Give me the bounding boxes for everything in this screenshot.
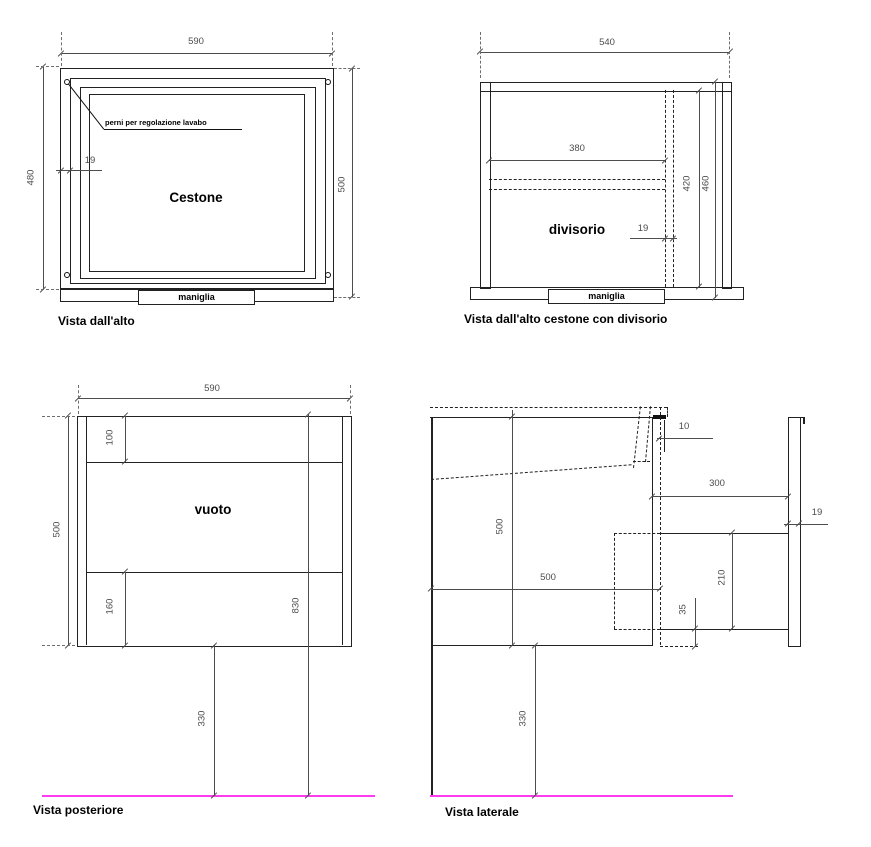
- dim-line: [489, 160, 665, 161]
- view-label-divisorio: divisorio: [527, 222, 627, 237]
- dim-text: 500: [533, 572, 563, 583]
- hidden-support-edge: [614, 533, 660, 534]
- dim-line: [784, 524, 828, 525]
- handle-label: maniglia: [178, 292, 215, 302]
- back-panel: [788, 417, 801, 648]
- ext-line: [334, 297, 360, 298]
- shelf-top-edge: [660, 533, 788, 535]
- dim-text: 590: [181, 36, 211, 47]
- hidden-bottom-ext: [660, 646, 698, 647]
- dim-text: 500: [337, 172, 348, 198]
- hidden-support-edge: [614, 629, 660, 630]
- dim-line: [695, 598, 696, 647]
- countertop-edge: [430, 417, 657, 419]
- dim-line: [68, 416, 69, 646]
- handle-box: maniglia: [138, 290, 255, 305]
- dim-line: [652, 496, 789, 497]
- dim-text: 830: [291, 593, 302, 619]
- counter-front-edge: [664, 420, 665, 452]
- side-wall-inner: [86, 416, 87, 646]
- basin-hidden-edge: [633, 461, 650, 462]
- dim-line: [61, 53, 332, 54]
- dim-line: [352, 68, 353, 297]
- hidden-top-edge: [667, 407, 668, 417]
- dim-text: 590: [197, 383, 227, 394]
- floor-line: [42, 795, 375, 797]
- annotation-label: perni per regolazione lavabo: [105, 118, 207, 127]
- pin-circle: [64, 272, 70, 278]
- technical-drawing-canvas: maniglia perni per regolazione lavabo Ce…: [0, 0, 871, 847]
- dim-text: 380: [562, 143, 592, 154]
- cabinet-outline: [77, 416, 352, 648]
- dim-text: 100: [105, 425, 116, 451]
- ext-line: [42, 416, 75, 417]
- dim-text: 480: [26, 165, 37, 191]
- dim-text: 420: [682, 171, 693, 197]
- basin-hidden-edge: [431, 464, 632, 480]
- hidden-support-edge: [614, 533, 615, 629]
- pin-circle: [325, 272, 331, 278]
- view-title: Vista laterale: [445, 805, 519, 819]
- dim-text: 210: [717, 565, 728, 591]
- ext-line: [36, 289, 59, 290]
- divider-hidden-edge: [673, 90, 674, 287]
- dim-text: 19: [628, 223, 658, 234]
- leader-underline: [104, 129, 242, 130]
- floor-line: [430, 795, 733, 797]
- cabinet-front-edge: [652, 417, 654, 647]
- view-title: Vista dall'alto cestone con divisorio: [464, 312, 667, 326]
- dim-line: [732, 533, 733, 629]
- dim-text: 540: [592, 37, 622, 48]
- ext-line: [480, 32, 481, 78]
- panel-hook: [803, 417, 805, 424]
- ext-line: [36, 66, 59, 67]
- dim-text: 300: [702, 478, 732, 489]
- rear-rail: [480, 82, 732, 93]
- hidden-front-edge: [660, 407, 661, 646]
- dim-text: 330: [518, 706, 529, 732]
- shelf-bottom-edge: [660, 629, 788, 631]
- dim-text: 160: [105, 594, 116, 620]
- dim-line: [715, 82, 716, 298]
- dim-line: [56, 170, 102, 171]
- dim-line: [308, 414, 309, 796]
- ext-line: [332, 32, 333, 66]
- hidden-top-edge: [430, 407, 667, 408]
- dim-text: 500: [52, 517, 63, 543]
- wall-edge: [431, 417, 433, 796]
- dim-text: 19: [802, 507, 832, 518]
- handle-label: maniglia: [588, 291, 625, 301]
- ext-line: [334, 68, 360, 69]
- dim-line: [125, 416, 126, 462]
- dim-line: [699, 90, 700, 287]
- dim-text: 19: [75, 155, 105, 166]
- view-label-cestone: Cestone: [146, 190, 246, 205]
- dim-line: [535, 645, 536, 795]
- right-wall: [722, 82, 733, 289]
- dim-line: [480, 52, 730, 53]
- dim-text: 35: [678, 597, 689, 623]
- ext-line: [729, 32, 730, 78]
- dim-line: [431, 589, 660, 590]
- cabinet-bottom-edge: [431, 645, 652, 647]
- view-title: Vista posteriore: [33, 803, 123, 817]
- dim-line: [125, 572, 126, 646]
- left-wall: [480, 82, 491, 289]
- view-title: Vista dall'alto: [58, 314, 135, 328]
- dim-line: [214, 645, 215, 796]
- rail-hidden-edge: [489, 179, 665, 180]
- basin-hidden-edge: [645, 406, 651, 462]
- side-wall-inner: [342, 416, 343, 646]
- ext-line: [42, 645, 75, 646]
- dim-text: 460: [700, 171, 711, 197]
- dim-line: [657, 438, 713, 439]
- dim-line: [512, 410, 513, 645]
- dim-text: 10: [669, 421, 699, 432]
- dim-text: 330: [196, 706, 207, 732]
- ext-line: [350, 385, 351, 414]
- tick: [692, 643, 698, 649]
- ext-line: [78, 385, 79, 414]
- view-label-vuoto: vuoto: [163, 502, 263, 517]
- rail-hidden-edge: [489, 189, 665, 190]
- dim-line: [78, 398, 350, 399]
- divider-hidden-edge: [665, 90, 666, 287]
- pin-circle: [325, 79, 331, 85]
- ext-line: [61, 32, 62, 66]
- dim-line: [43, 66, 44, 289]
- handle-box: maniglia: [548, 289, 665, 304]
- dim-text: 500: [495, 514, 506, 540]
